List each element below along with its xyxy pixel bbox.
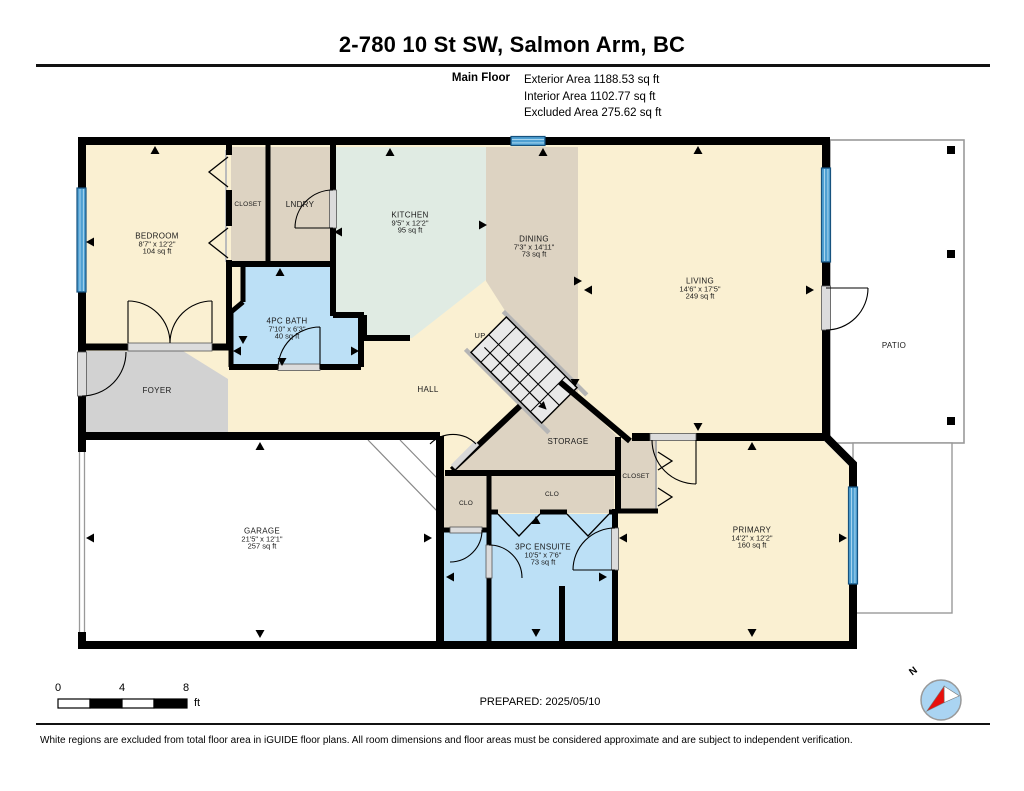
room-label-closet-primary: CLOSET	[622, 473, 649, 481]
compass-icon	[921, 680, 961, 720]
prepared-date: PREPARED: 2025/05/10	[480, 696, 601, 708]
room-label-closet-hall: CLOSET	[234, 201, 261, 209]
room-label-dining: DINING 7'3" x 14'11" 73 sq ft	[514, 236, 555, 259]
scale-bar	[58, 699, 187, 708]
garage-door-icon	[77, 452, 87, 632]
room-label-patio: PATIO	[882, 342, 906, 350]
room-label-primary: PRIMARY 14'2" x 12'2" 160 sq ft	[731, 527, 772, 550]
window-icon	[511, 137, 545, 146]
window-icon	[77, 188, 86, 292]
room-label-ensuite: 3PC ENSUITE 10'5" x 7'6" 73 sq ft	[515, 544, 571, 567]
header-divider	[36, 64, 990, 67]
exterior-area: Exterior Area 1188.53 sq ft	[524, 72, 661, 89]
room-label-bath: 4PC BATH 7'10" x 6'3" 40 sq ft	[267, 318, 308, 341]
floor-label: Main Floor	[0, 72, 510, 84]
room-label-bedroom: BEDROOM 8'7" x 12'2" 104 sq ft	[135, 233, 178, 256]
window-icon	[849, 487, 858, 584]
patio-post	[947, 250, 955, 258]
window-icon	[822, 168, 831, 262]
floorplan-drawing	[0, 0, 1024, 791]
scale-unit: ft	[194, 697, 200, 709]
room-label-clo-small: CLO	[459, 500, 473, 508]
room-label-laundry: LNDRY	[286, 201, 314, 209]
room-label-foyer: FOYER	[142, 387, 171, 395]
footer-disclaimer: White regions are excluded from total fl…	[40, 735, 1000, 746]
room-label-garage: GARAGE 21'5" x 12'1" 257 sq ft	[241, 528, 282, 551]
room-fills	[86, 145, 849, 641]
interior-area: Interior Area 1102.77 sq ft	[524, 89, 661, 106]
room-label-hall: HALL	[417, 386, 438, 394]
scale-tick-0: 0	[55, 682, 61, 694]
room-label-clo-wide: CLO	[545, 491, 559, 499]
scale-tick-4: 4	[119, 682, 125, 694]
page-title: 2-780 10 St SW, Salmon Arm, BC	[0, 32, 1024, 58]
room-label-living: LIVING 14'6" x 17'5" 249 sq ft	[679, 278, 720, 301]
patio-post	[947, 146, 955, 154]
room-label-storage: STORAGE	[547, 438, 588, 446]
room-label-kitchen: KITCHEN 9'5" x 12'2" 95 sq ft	[391, 212, 428, 235]
floorplan-page: 2-780 10 St SW, Salmon Arm, BC Main Floo…	[0, 0, 1024, 791]
patio-post	[947, 417, 955, 425]
footer-divider	[36, 723, 990, 725]
excluded-area: Excluded Area 275.62 sq ft	[524, 105, 661, 122]
area-summary: Exterior Area 1188.53 sq ft Interior Are…	[524, 72, 661, 122]
stairs-up-label: UP	[474, 332, 485, 340]
scale-tick-8: 8	[183, 682, 189, 694]
